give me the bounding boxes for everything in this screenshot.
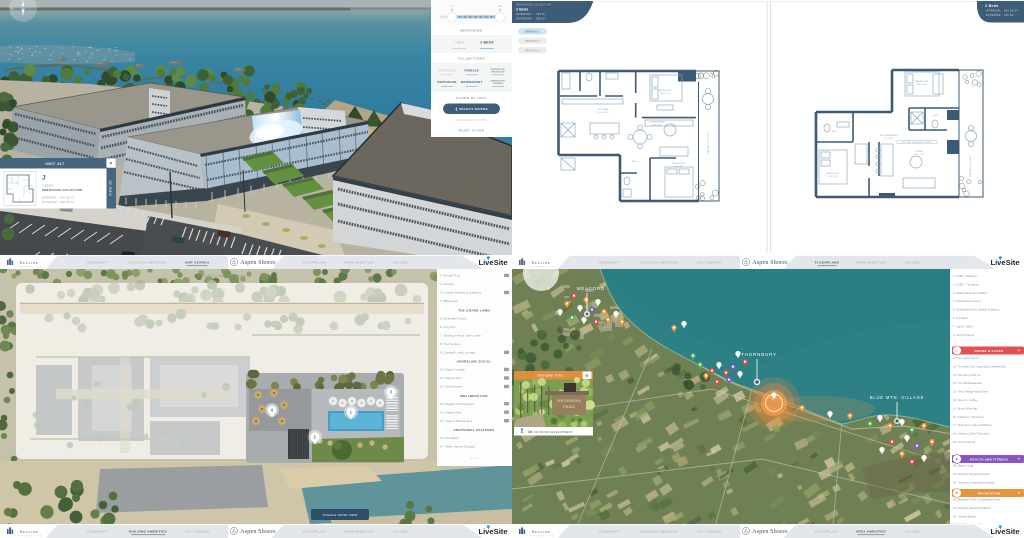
svg-text:ADDITIONAL FEATURES: ADDITIONAL FEATURES [454, 428, 495, 432]
svg-text:KITCHEN: KITCHEN [598, 109, 609, 111]
svg-text:PENTHOUSE: PENTHOUSE [437, 80, 456, 84]
svg-text:TRAIL: TRAIL [563, 404, 576, 409]
svg-text:TERRACE: TERRACE [464, 69, 479, 73]
svg-text:17. Water Sports Storage: 17. Water Sports Storage [440, 445, 475, 449]
svg-text:COLLECTIONS: COLLECTIONS [458, 57, 485, 61]
svg-text:10. Alpine Lounge: 10. Alpine Lounge [440, 368, 465, 372]
svg-text:18. Ashanti Coffee Thornbury: 18. Ashanti Coffee Thornbury [953, 432, 990, 436]
svg-text:769 SQ FT: 769 SQ FT [60, 196, 75, 200]
svg-text:769 ft²: 769 ft² [536, 12, 545, 16]
svg-text:15. Yoga & Pilates Area: 15. Yoga & Pilates Area [440, 419, 473, 423]
svg-text:13. Weight Training Area: 13. Weight Training Area [440, 402, 474, 406]
svg-text:COMMUNITY: COMMUNITY [599, 261, 621, 265]
svg-text:Aspen Shores: Aspen Shores [752, 529, 788, 535]
svg-text:FILTER BY UNIT: FILTER BY UNIT [456, 96, 486, 100]
svg-text:BUILDING AMENITIES: BUILDING AMENITIES [129, 530, 167, 534]
svg-text:PENTHOUSE COLLECTION: PENTHOUSE COLLECTION [42, 188, 82, 192]
svg-text:16. Pet Wash: 16. Pet Wash [440, 436, 459, 440]
svg-text:BEDROOM 1: BEDROOM 1 [659, 90, 673, 92]
svg-text:BEDROOM 1: BEDROOM 1 [916, 81, 930, 83]
svg-text:DINING & CAFES: DINING & CAFES [975, 349, 1004, 353]
svg-text:RESET FILTER: RESET FILTER [459, 129, 485, 133]
svg-text:14. Cardio Area: 14. Cardio Area [440, 410, 462, 414]
svg-text:20. Marina Yoga: 20. Marina Yoga [953, 464, 974, 468]
svg-text:FILTERING 41 UNITS: FILTERING 41 UNITS [457, 119, 487, 122]
svg-text:▾: ▾ [1018, 349, 1020, 353]
svg-text:♨: ♨ [955, 348, 959, 353]
svg-text:INTERIOR:: INTERIOR: [516, 12, 532, 16]
svg-text:LIVING: LIVING [915, 151, 923, 153]
svg-text:J: J [42, 175, 46, 182]
svg-text:UNIT SEARCH: UNIT SEARCH [185, 261, 209, 265]
svg-text:▾: ▾ [1018, 491, 1020, 495]
svg-text:Aspen Shores: Aspen Shores [240, 529, 276, 535]
svg-text:13. Ted's Range Road Diner: 13. Ted's Range Road Diner [953, 390, 988, 394]
svg-text:LIFESTYLE: LIFESTYLE [439, 69, 456, 73]
svg-text:VERSION 3: VERSION 3 [525, 49, 541, 52]
svg-text:BUILDING AMENITIES: BUILDING AMENITIES [129, 261, 166, 265]
svg-text:6. Foodland: 6. Foodland [953, 316, 968, 320]
svg-text:BATH: BATH [632, 160, 638, 163]
svg-text:GALLERY: GALLERY [905, 530, 921, 534]
svg-text:12'-6" x 9'-6": 12'-6" x 9'-6" [828, 176, 838, 178]
svg-text:EXTERIOR:: EXTERIOR: [42, 200, 58, 204]
svg-text:Aspen Shores: Aspen Shores [240, 260, 276, 266]
svg-text:2. LCBO - Thornbury: 2. LCBO - Thornbury [953, 282, 980, 286]
svg-text:GEORGIAN: GEORGIAN [557, 398, 580, 403]
svg-text:BEDROOM 2: BEDROOM 2 [827, 173, 841, 175]
svg-text:UNIT 417: UNIT 417 [45, 162, 64, 166]
svg-text:BALCONY 5'-0" x 29'-4": BALCONY 5'-0" x 29'-4" [969, 155, 972, 177]
svg-text:WELLNESS HUB: WELLNESS HUB [460, 394, 488, 398]
svg-text:2 Beds: 2 Beds [516, 7, 528, 11]
svg-text:VIEW 3D: VIEW 3D [109, 180, 113, 196]
svg-text:INTERIOR:: INTERIOR: [986, 10, 1001, 13]
svg-text:166 SQ FT: 166 SQ FT [60, 200, 75, 204]
svg-text:WATERFRONT: WATERFRONT [491, 68, 507, 71]
svg-text:2: 2 [314, 435, 317, 440]
svg-text:AREA AMENITIES: AREA AMENITIES [856, 530, 886, 534]
svg-text:BUILDING AMENITIES: BUILDING AMENITIES [641, 530, 678, 534]
svg-text:15. Bruce Wine Bar: 15. Bruce Wine Bar [953, 406, 977, 410]
svg-text:7. Squire John's: 7. Squire John's [953, 324, 974, 328]
svg-text:SKYLINE: SKYLINE [532, 260, 551, 265]
svg-text:FLOORPLANS: FLOORPLANS [303, 530, 327, 534]
svg-text:4. BBQ Area: 4. BBQ Area [440, 299, 457, 303]
svg-text:2 Beds: 2 Beds [985, 4, 999, 8]
svg-text:4+: 4+ [498, 4, 502, 8]
svg-text:W: W [11, 8, 14, 11]
svg-text:GALLERY: GALLERY [905, 261, 921, 265]
svg-text:⚑: ⚑ [955, 490, 959, 495]
svg-text:✕: ✕ [109, 161, 113, 166]
svg-text:2. Saunas: 2. Saunas [440, 282, 454, 286]
svg-text:5. Goldsmith's Farm Market & B: 5. Goldsmith's Farm Market & Bakery [953, 308, 1000, 312]
svg-text:BATH: BATH [832, 130, 838, 133]
svg-text:PENTHOUSE COLLECTION: PENTHOUSE COLLECTION [516, 3, 551, 6]
svg-text:914 SQ.FT.: 914 SQ.FT. [1004, 10, 1019, 13]
svg-text:MEAFORD: MEAFORD [577, 286, 605, 291]
svg-text:PENTHOUSE: PENTHOUSE [491, 72, 505, 74]
svg-text:UNIT SEARCH: UNIT SEARCH [697, 530, 721, 534]
svg-text:WATERFRONT: WATERFRONT [491, 80, 507, 83]
svg-text:11. Thornbury Golf Co.: 11. Thornbury Golf Co. [953, 373, 981, 377]
svg-text:158 SF: 158 SF [1004, 14, 1014, 17]
svg-text:EXTERIOR:: EXTERIOR: [986, 14, 1002, 17]
svg-text:✕: ✕ [585, 373, 589, 378]
svg-text:GALLERY: GALLERY [393, 530, 409, 534]
svg-text:16: 16 [528, 430, 532, 434]
svg-text:COMMUNITY: COMMUNITY [87, 261, 109, 265]
svg-text:RECREATION: RECREATION [978, 491, 1001, 495]
svg-text:1. LCBO - Meaford: 1. LCBO - Meaford [953, 274, 977, 278]
svg-text:SHORELINE TERRACE: SHORELINE TERRACE [198, 274, 250, 278]
svg-text:LiveSite: LiveSite [478, 527, 507, 536]
svg-text:HEALTH AND FITNESS: HEALTH AND FITNESS [970, 457, 1008, 461]
svg-text:13'-7" x 11'-2": 13'-7" x 11'-2" [914, 154, 925, 156]
svg-text:THORNBURY: THORNBURY [741, 352, 777, 357]
svg-text:AREA AMENITIES: AREA AMENITIES [344, 530, 374, 534]
svg-text:11. Players Den: 11. Players Den [440, 376, 462, 380]
svg-text:COMMUNITY: COMMUNITY [599, 530, 621, 534]
svg-text:LiveSite: LiveSite [990, 258, 1019, 267]
svg-text:12. The Mill Restaurant: 12. The Mill Restaurant [953, 381, 982, 385]
svg-text:WATERFRONT: WATERFRONT [461, 80, 483, 84]
svg-text:5. Pickleball Courts: 5. Pickleball Courts [440, 316, 467, 320]
svg-text:BEDROOMS: BEDROOMS [460, 29, 482, 33]
svg-text:14. Sisi+Co. Coffee: 14. Sisi+Co. Coffee [953, 398, 978, 402]
svg-text:KITCHEN/DINING: KITCHEN/DINING [880, 135, 898, 137]
svg-text:UNIT SEARCH: UNIT SEARCH [185, 530, 209, 534]
svg-text:22. Thornbury Veterinary Hospi: 22. Thornbury Veterinary Hospital [953, 480, 995, 484]
svg-text:Aspen Shores: Aspen Shores [752, 260, 788, 266]
svg-text:EXTERIOR:: EXTERIOR: [516, 17, 533, 21]
svg-text:17. Thornbury Cafe and Bakery: 17. Thornbury Cafe and Bakery [953, 423, 993, 427]
svg-text:AREA AMENITIES: AREA AMENITIES [856, 261, 886, 265]
svg-text:21. Meaford General Hospital: 21. Meaford General Hospital [953, 472, 990, 476]
svg-text:▾: ▾ [1018, 457, 1020, 461]
svg-text:INTERIOR:: INTERIOR: [42, 196, 57, 200]
svg-text:13'-10" x 12'-10": 13'-10" x 12'-10" [597, 112, 610, 114]
svg-text:COMMUNITY: COMMUNITY [87, 530, 109, 534]
svg-text:10. The Dam Pub Gastropub & Wh: 10. The Dam Pub Gastropub & Whisky Bar [953, 364, 1006, 368]
svg-text:1 BED: 1 BED [454, 41, 465, 45]
svg-text:SKYLINE: SKYLINE [20, 529, 39, 534]
svg-text:BEDROOM 2: BEDROOM 2 [673, 163, 687, 165]
svg-text:FLOORPLANS: FLOORPLANS [815, 530, 839, 534]
svg-text:12'-10" x 9'-9": 12'-10" x 9'-9" [660, 93, 671, 95]
svg-text:BALCONY 5'-0" x 30'-0": BALCONY 5'-0" x 30'-0" [707, 132, 710, 154]
svg-text:16. Fabbrica - Thornbury: 16. Fabbrica - Thornbury [953, 415, 984, 419]
svg-text:UNIT SEARCH: UNIT SEARCH [697, 261, 721, 265]
svg-text:BLUE MTN. VILLAGE: BLUE MTN. VILLAGE [870, 395, 925, 400]
svg-text:8. Verti Orchards: 8. Verti Orchards [953, 333, 975, 337]
svg-text:1. Private Pool: 1. Private Pool [440, 274, 461, 278]
svg-text:VERSION 2: VERSION 2 [525, 40, 541, 43]
svg-text:6. Dog Run: 6. Dog Run [440, 325, 456, 329]
svg-text:1: 1 [350, 410, 353, 415]
svg-text:Georgian Trail: Georgian Trail [537, 374, 563, 378]
svg-text:3. Lounge Seating & Cabanas: 3. Lounge Seating & Cabanas [440, 291, 482, 295]
svg-text:12. Dual Kitchen: 12. Dual Kitchen [440, 385, 463, 389]
svg-text:THE GRAND LAWN: THE GRAND LAWN [458, 308, 490, 312]
svg-text:2 BEDS: 2 BEDS [42, 184, 54, 188]
svg-text:KM FROM DEVELOPMENT: KM FROM DEVELOPMENT [534, 430, 574, 434]
svg-text:13'-2" x 9'-0": 13'-2" x 9'-0" [652, 125, 662, 127]
svg-text:2 BEDS: 2 BEDS [480, 41, 494, 45]
svg-text:9. Cocktail Lobby Lounge: 9. Cocktail Lobby Lounge [440, 350, 475, 354]
svg-text:TOGGLE 2D/3D VIEW: TOGGLE 2D/3D VIEW [322, 513, 357, 517]
svg-text:3. Meaford Farmer's Market: 3. Meaford Farmer's Market [953, 291, 988, 295]
svg-text:SKYLINE: SKYLINE [532, 529, 551, 534]
svg-text:165 ft²: 165 ft² [536, 17, 545, 21]
svg-text:SHORELINE SOCIAL: SHORELINE SOCIAL [457, 360, 491, 364]
svg-text:24. Meaford Harbour & Marina: 24. Meaford Harbour & Marina [953, 506, 991, 510]
svg-text:9'-9" x 13'-0": 9'-9" x 13'-0" [884, 138, 894, 140]
svg-text:LiveSite: LiveSite [478, 258, 507, 267]
svg-text:4. Independent Grocer: 4. Independent Grocer [953, 299, 981, 303]
svg-text:FLOORPLANS: FLOORPLANS [303, 261, 327, 265]
svg-text:FLOORPLANS: FLOORPLANS [815, 261, 839, 265]
svg-text:♥: ♥ [956, 456, 959, 461]
svg-text:DEN: DEN [934, 115, 939, 117]
svg-text:25. Christie Beach: 25. Christie Beach [953, 514, 976, 518]
svg-text:VERSION 1: VERSION 1 [525, 30, 541, 33]
svg-text:GALLERY: GALLERY [393, 261, 409, 265]
svg-text:• • •: • • • [471, 456, 477, 460]
svg-text:TERRACE: TERRACE [493, 82, 504, 85]
svg-text:9'-8" x 9'-0": 9'-8" x 9'-0" [675, 166, 684, 168]
svg-text:LiveSite: LiveSite [990, 527, 1019, 536]
svg-text:7. Seating Area & Open Lawn: 7. Seating Area & Open Lawn [440, 333, 481, 337]
svg-text:13'-9" x 10'-4": 13'-9" x 10'-4" [917, 84, 928, 86]
svg-text:BUILDING AMENITIES: BUILDING AMENITIES [641, 261, 678, 265]
svg-text:LIVING/DINING: LIVING/DINING [649, 122, 665, 124]
svg-text:8. Trail System: 8. Trail System [440, 342, 461, 346]
svg-text:1: 1 [451, 4, 453, 8]
svg-text:23. Big Head River Conservatio: 23. Big Head River Conservation Area [953, 498, 1001, 502]
svg-text:P R O P E R T I E S: P R O P E R T I E S [18, 535, 42, 537]
svg-text:AREA AMENITIES: AREA AMENITIES [344, 261, 374, 265]
svg-text:4: 4 [271, 408, 274, 413]
svg-text:19. Amici Pizzeria: 19. Amici Pizzeria [953, 440, 976, 444]
svg-text:SKYLINE: SKYLINE [20, 260, 39, 265]
svg-text:9. The Leeky Canoe: 9. The Leeky Canoe [953, 356, 979, 360]
svg-text:❮ SELECT SUITES: ❮ SELECT SUITES [455, 107, 488, 111]
svg-text:P R O P E R T I E S: P R O P E R T I E S [530, 535, 554, 537]
svg-text:3: 3 [390, 390, 393, 395]
